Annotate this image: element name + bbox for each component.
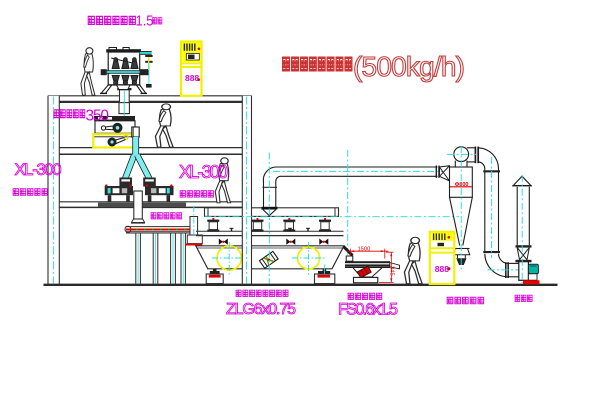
svg-text:888: 888 xyxy=(435,264,449,274)
svg-text:XL-300: XL-300 xyxy=(179,162,228,182)
svg-text:1500: 1500 xyxy=(358,246,371,252)
svg-text:350: 350 xyxy=(86,108,110,125)
svg-text:888: 888 xyxy=(185,73,199,83)
svg-text:FS0.6x1.5: FS0.6x1.5 xyxy=(338,301,398,319)
svg-text:1.5: 1.5 xyxy=(136,13,154,30)
svg-text:(500kg/h): (500kg/h) xyxy=(353,51,465,82)
svg-text:ZLG6x0.75: ZLG6x0.75 xyxy=(226,301,296,318)
svg-text:XL-300: XL-300 xyxy=(15,161,62,179)
svg-text:345: 345 xyxy=(388,266,394,276)
